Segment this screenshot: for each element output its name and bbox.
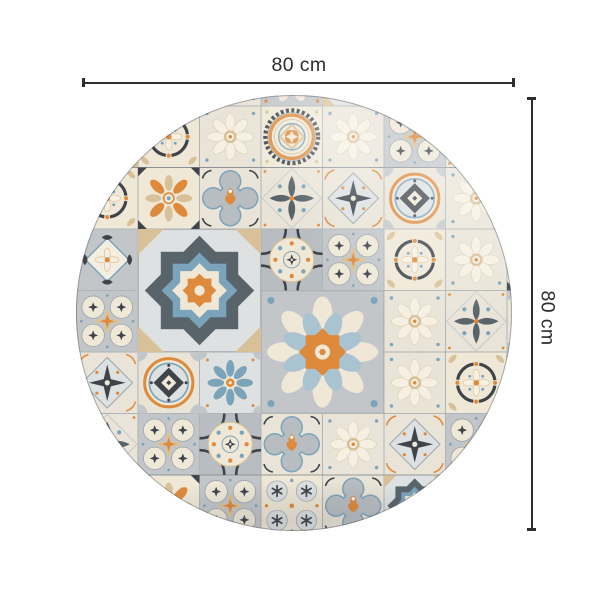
tile-blue-flower	[130, 37, 207, 114]
tile-ring-diamond	[129, 343, 209, 423]
tile-diamond-curl	[15, 475, 77, 537]
tile-cross-petal	[507, 352, 569, 414]
tile-daisy	[446, 475, 508, 537]
tile-snowflake	[507, 168, 569, 230]
tile-diamond-star	[77, 352, 139, 414]
tile-four-rings	[15, 352, 77, 414]
tile-quatrefoil	[200, 168, 262, 230]
tile-blue-flower	[499, 406, 576, 483]
tile-blue-flower	[192, 344, 269, 421]
rug-bottom-shade	[89, 480, 499, 564]
tile-snowflake	[15, 106, 77, 168]
tile-orange-cross	[138, 168, 200, 230]
tile-octastar	[15, 291, 77, 353]
tile-medallion	[507, 475, 569, 537]
tile-sunburst	[261, 291, 384, 414]
tile-cross-petal	[446, 106, 508, 168]
tile-orange-cross	[138, 475, 200, 537]
tile-four-rings	[138, 414, 200, 476]
product-dimension-figure: 80 cm 80 cm	[0, 0, 600, 600]
tile-daisy	[323, 414, 385, 476]
tile-octastar	[77, 106, 139, 168]
tile-cross-petal	[15, 45, 77, 107]
tile-four-rings	[77, 291, 139, 353]
tile-blue-flower	[69, 467, 146, 544]
tile-four-rings	[77, 45, 139, 107]
rug-clip-group	[7, 20, 600, 564]
tile-orange-cross	[507, 45, 569, 107]
tile-diamond-curl	[77, 229, 139, 291]
tile-cross-petal	[77, 414, 139, 476]
tile-orange-cross	[507, 229, 569, 291]
tile-arc-circle	[15, 414, 77, 476]
tile-arc-circle	[77, 168, 139, 230]
tile-blue-flower	[499, 98, 576, 175]
tile-daisy	[200, 45, 262, 107]
tile-diamond-curl	[446, 45, 508, 107]
rug-sheen-highlight	[240, 43, 410, 213]
tile-diamond-star	[384, 414, 446, 476]
tile-quatrefoil	[261, 414, 323, 476]
tile-arc-circle	[446, 352, 508, 414]
tile-octastar	[323, 45, 385, 107]
tile-blue-flower	[7, 160, 84, 237]
tile-arc-circle	[384, 45, 446, 107]
tile-arc-circle	[138, 106, 200, 168]
round-tile-rug-image	[0, 0, 600, 600]
tile-daisy	[384, 352, 446, 414]
tile-daisy	[15, 229, 77, 291]
tile-four-rings	[446, 414, 508, 476]
tile-octastar	[138, 229, 261, 352]
